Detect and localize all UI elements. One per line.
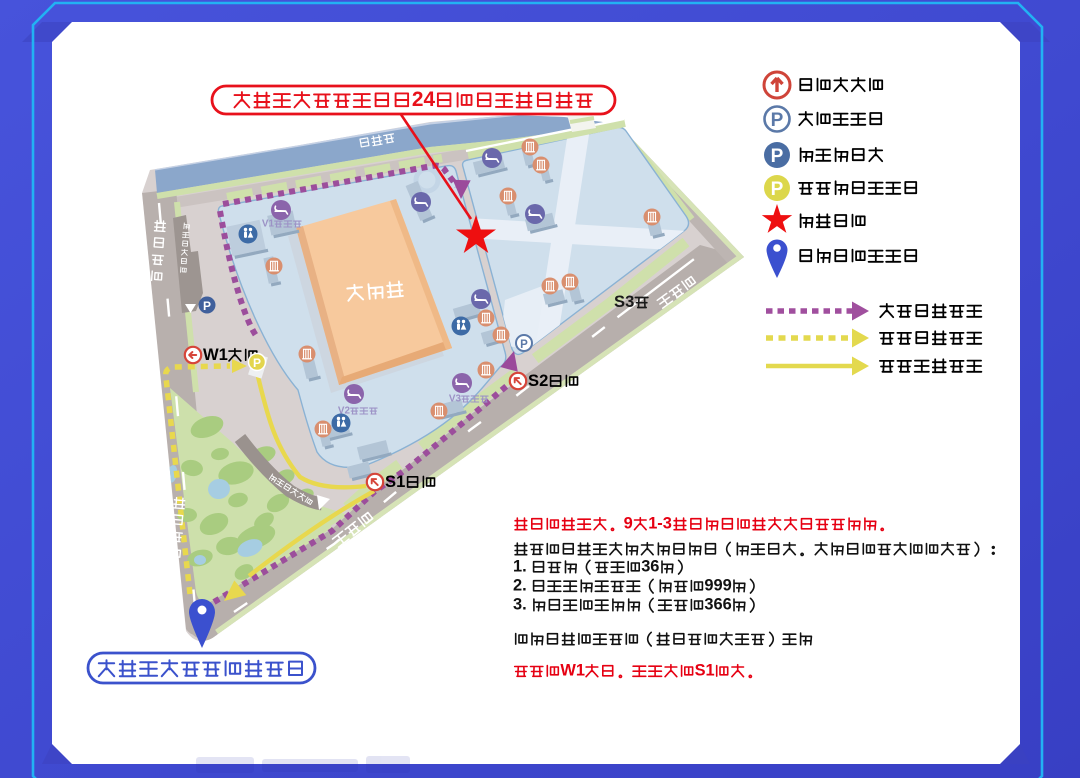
svg-text:P: P: [771, 179, 784, 200]
svg-text:W1: W1: [560, 662, 585, 680]
svg-text:S1: S1: [385, 472, 405, 491]
svg-text:S3: S3: [614, 292, 634, 311]
svg-text:999: 999: [704, 577, 731, 595]
svg-text:36: 36: [641, 558, 659, 576]
svg-text:P: P: [203, 299, 211, 313]
svg-text:S2: S2: [528, 371, 548, 390]
svg-text:V2: V2: [338, 406, 351, 417]
svg-text:S1: S1: [695, 662, 715, 680]
svg-text:V1: V1: [262, 219, 275, 230]
svg-text:P: P: [520, 339, 528, 351]
svg-text:V3: V3: [449, 394, 462, 405]
svg-text:24: 24: [412, 88, 436, 111]
svg-text:W1: W1: [203, 345, 228, 364]
svg-text:1.: 1.: [513, 558, 527, 576]
svg-text:1-3: 1-3: [648, 515, 672, 533]
svg-text:P: P: [771, 110, 784, 131]
svg-text:9: 9: [624, 515, 633, 533]
svg-text:3.: 3.: [513, 596, 527, 614]
svg-text:2.: 2.: [513, 577, 527, 595]
svg-text:P: P: [771, 146, 784, 167]
svg-text:366: 366: [704, 596, 731, 614]
svg-text:P: P: [253, 356, 261, 370]
